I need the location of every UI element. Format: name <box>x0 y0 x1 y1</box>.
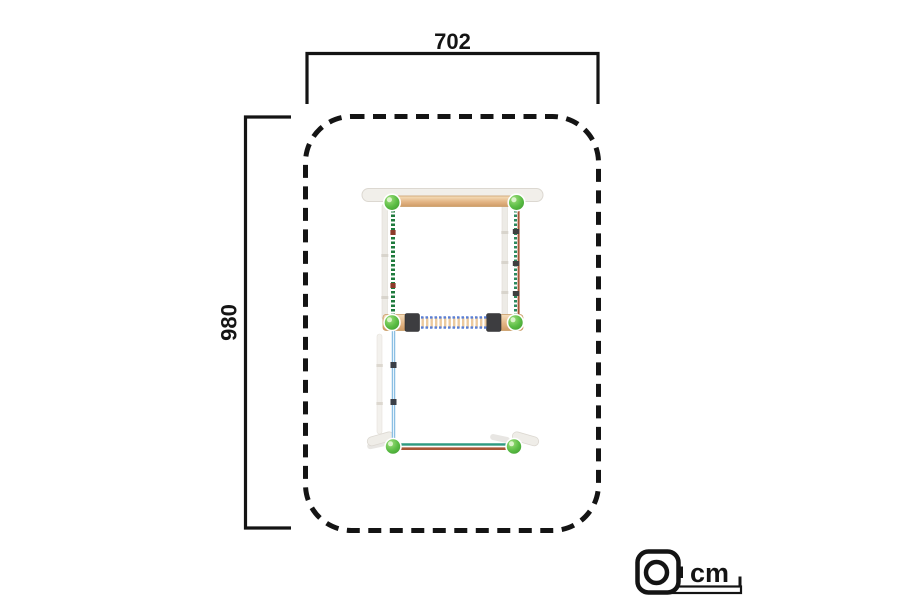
diagram-canvas: 702 980 <box>0 0 900 600</box>
ball-bottom-left <box>385 439 401 455</box>
lower-frame-post <box>376 334 382 434</box>
top-dimension-line: 702 <box>307 29 598 104</box>
ball-middle-left <box>384 315 400 331</box>
safety-zone-boundary <box>306 117 599 531</box>
right-climbing-ropes <box>513 210 519 317</box>
ground-beam <box>399 445 510 449</box>
wooden-top-beam <box>390 196 520 207</box>
left-climbing-rope <box>390 210 395 317</box>
ball-top-left <box>384 194 401 211</box>
left-dimension-line: 980 <box>217 117 292 528</box>
tape-outlet <box>678 567 683 579</box>
left-dimension-label: 980 <box>217 304 242 341</box>
bridge-right-clamp <box>487 314 502 332</box>
ball-bottom-right <box>506 439 522 455</box>
ball-middle-right <box>508 315 524 331</box>
bridge-left-clamp <box>405 314 420 332</box>
tape-reel <box>646 562 667 583</box>
unit-label: cm <box>690 558 729 588</box>
unit-legend: cm <box>638 552 742 594</box>
equipment-top-view <box>362 189 543 455</box>
left-dimension-bracket <box>246 117 292 528</box>
rope-bridge <box>383 314 523 332</box>
upper-frame-posts <box>381 204 508 320</box>
lower-hanging-rope <box>391 331 397 441</box>
top-dimension-bracket <box>307 54 598 105</box>
dimension-diagram: 702 980 <box>0 0 900 600</box>
top-dimension-label: 702 <box>434 29 471 54</box>
ball-top-right <box>508 194 525 211</box>
